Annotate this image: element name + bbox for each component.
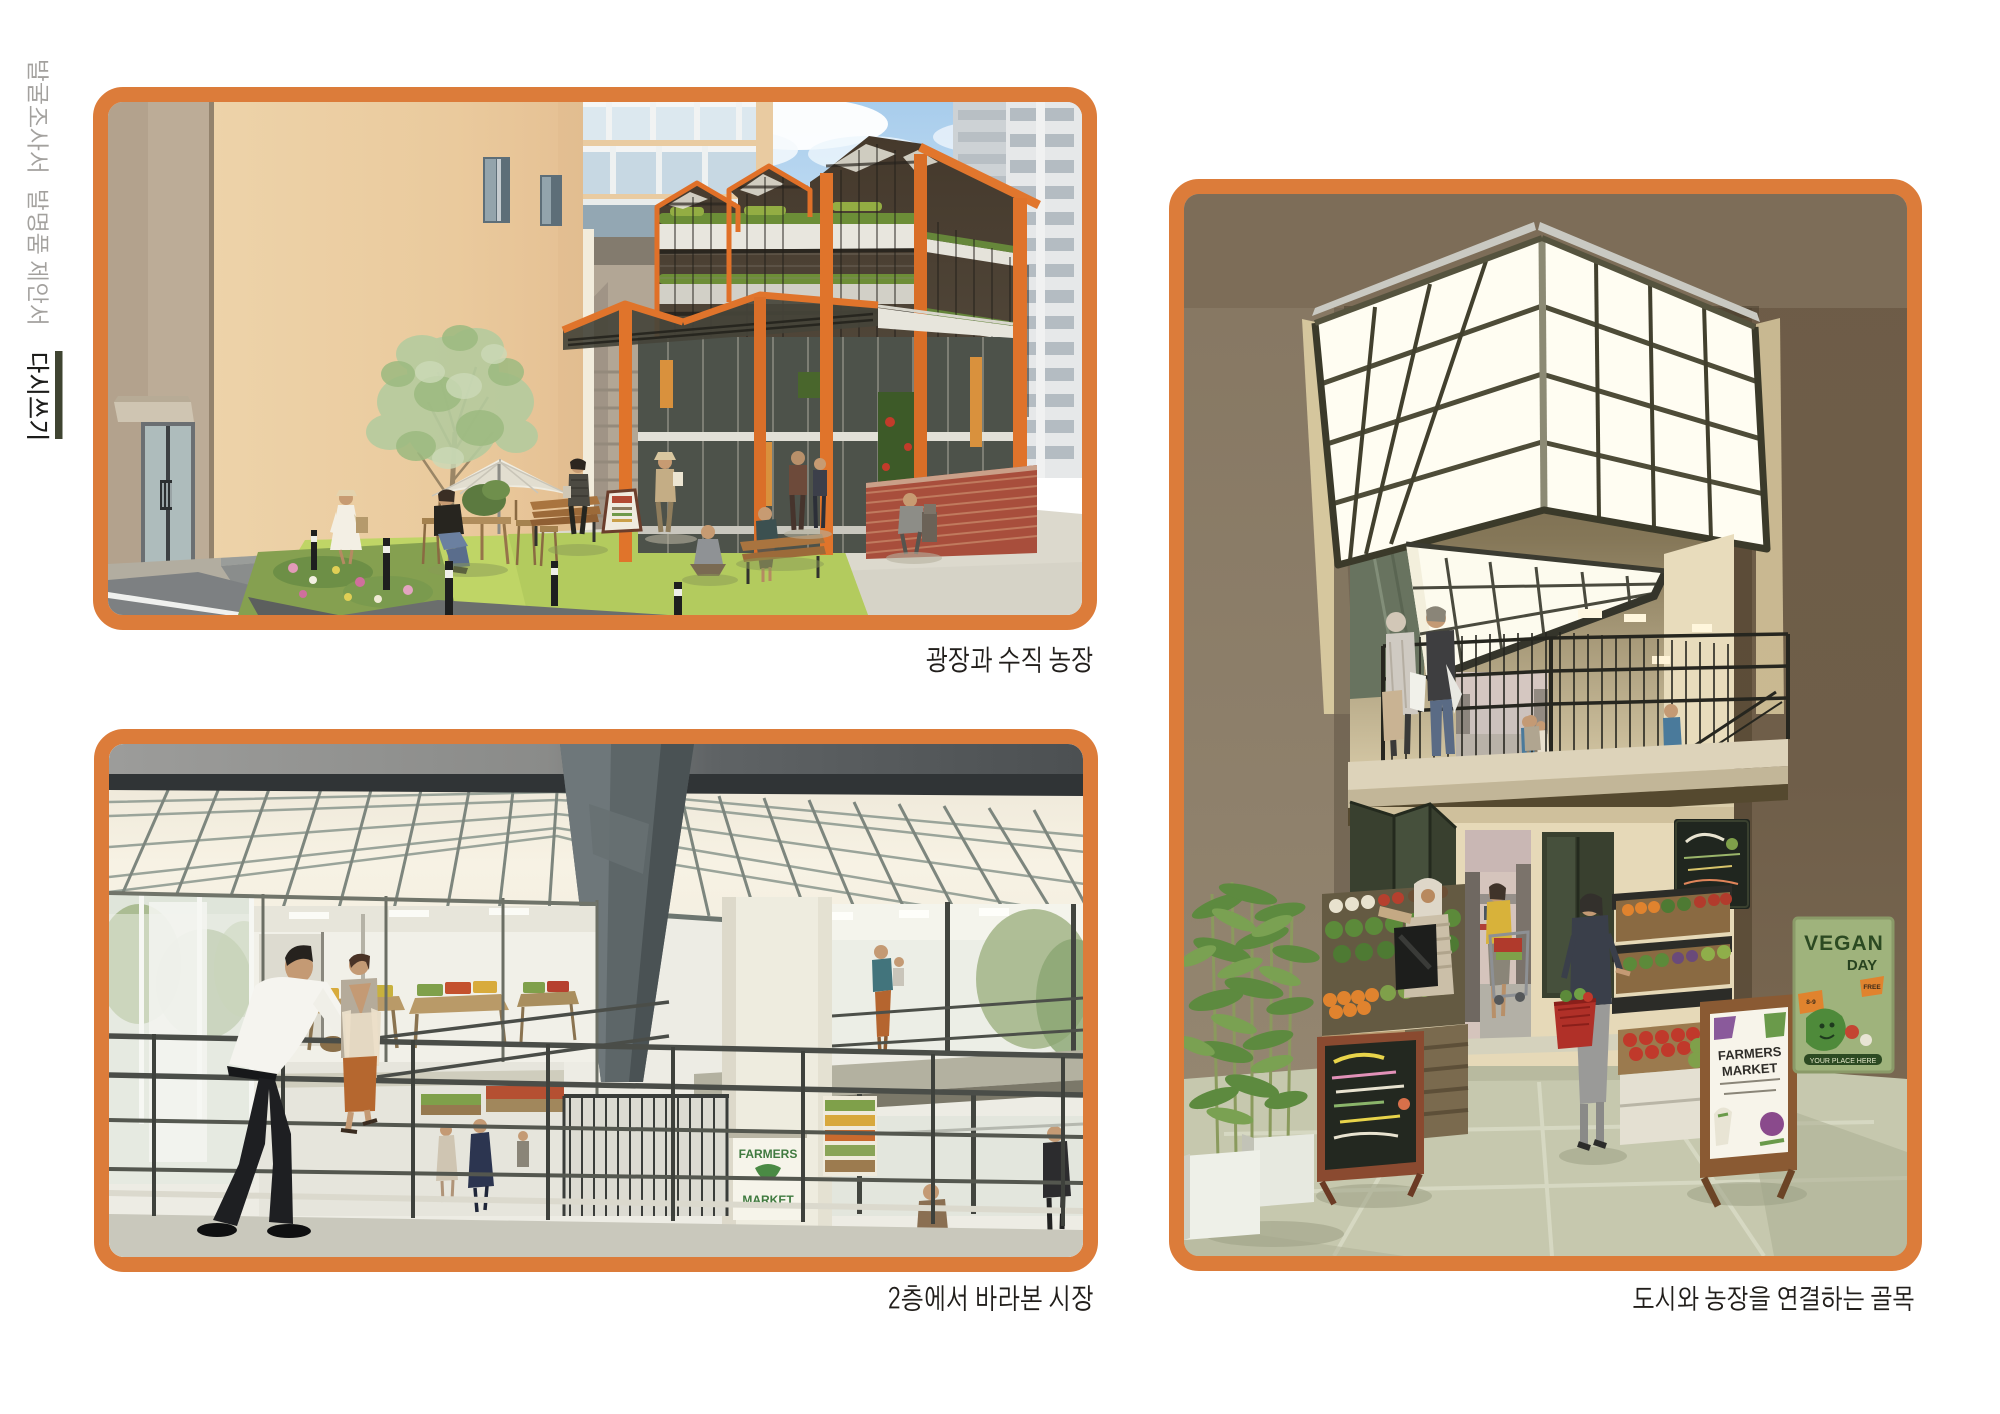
- svg-text:8-9: 8-9: [1806, 999, 1816, 1006]
- svg-text:YOUR PLACE HERE: YOUR PLACE HERE: [1810, 1058, 1877, 1065]
- svg-text:FARMERS: FARMERS: [739, 1147, 798, 1161]
- svg-text:DAY: DAY: [1847, 957, 1877, 974]
- svg-text:VEGAN: VEGAN: [1804, 932, 1884, 955]
- svg-text:FREE: FREE: [1863, 984, 1881, 991]
